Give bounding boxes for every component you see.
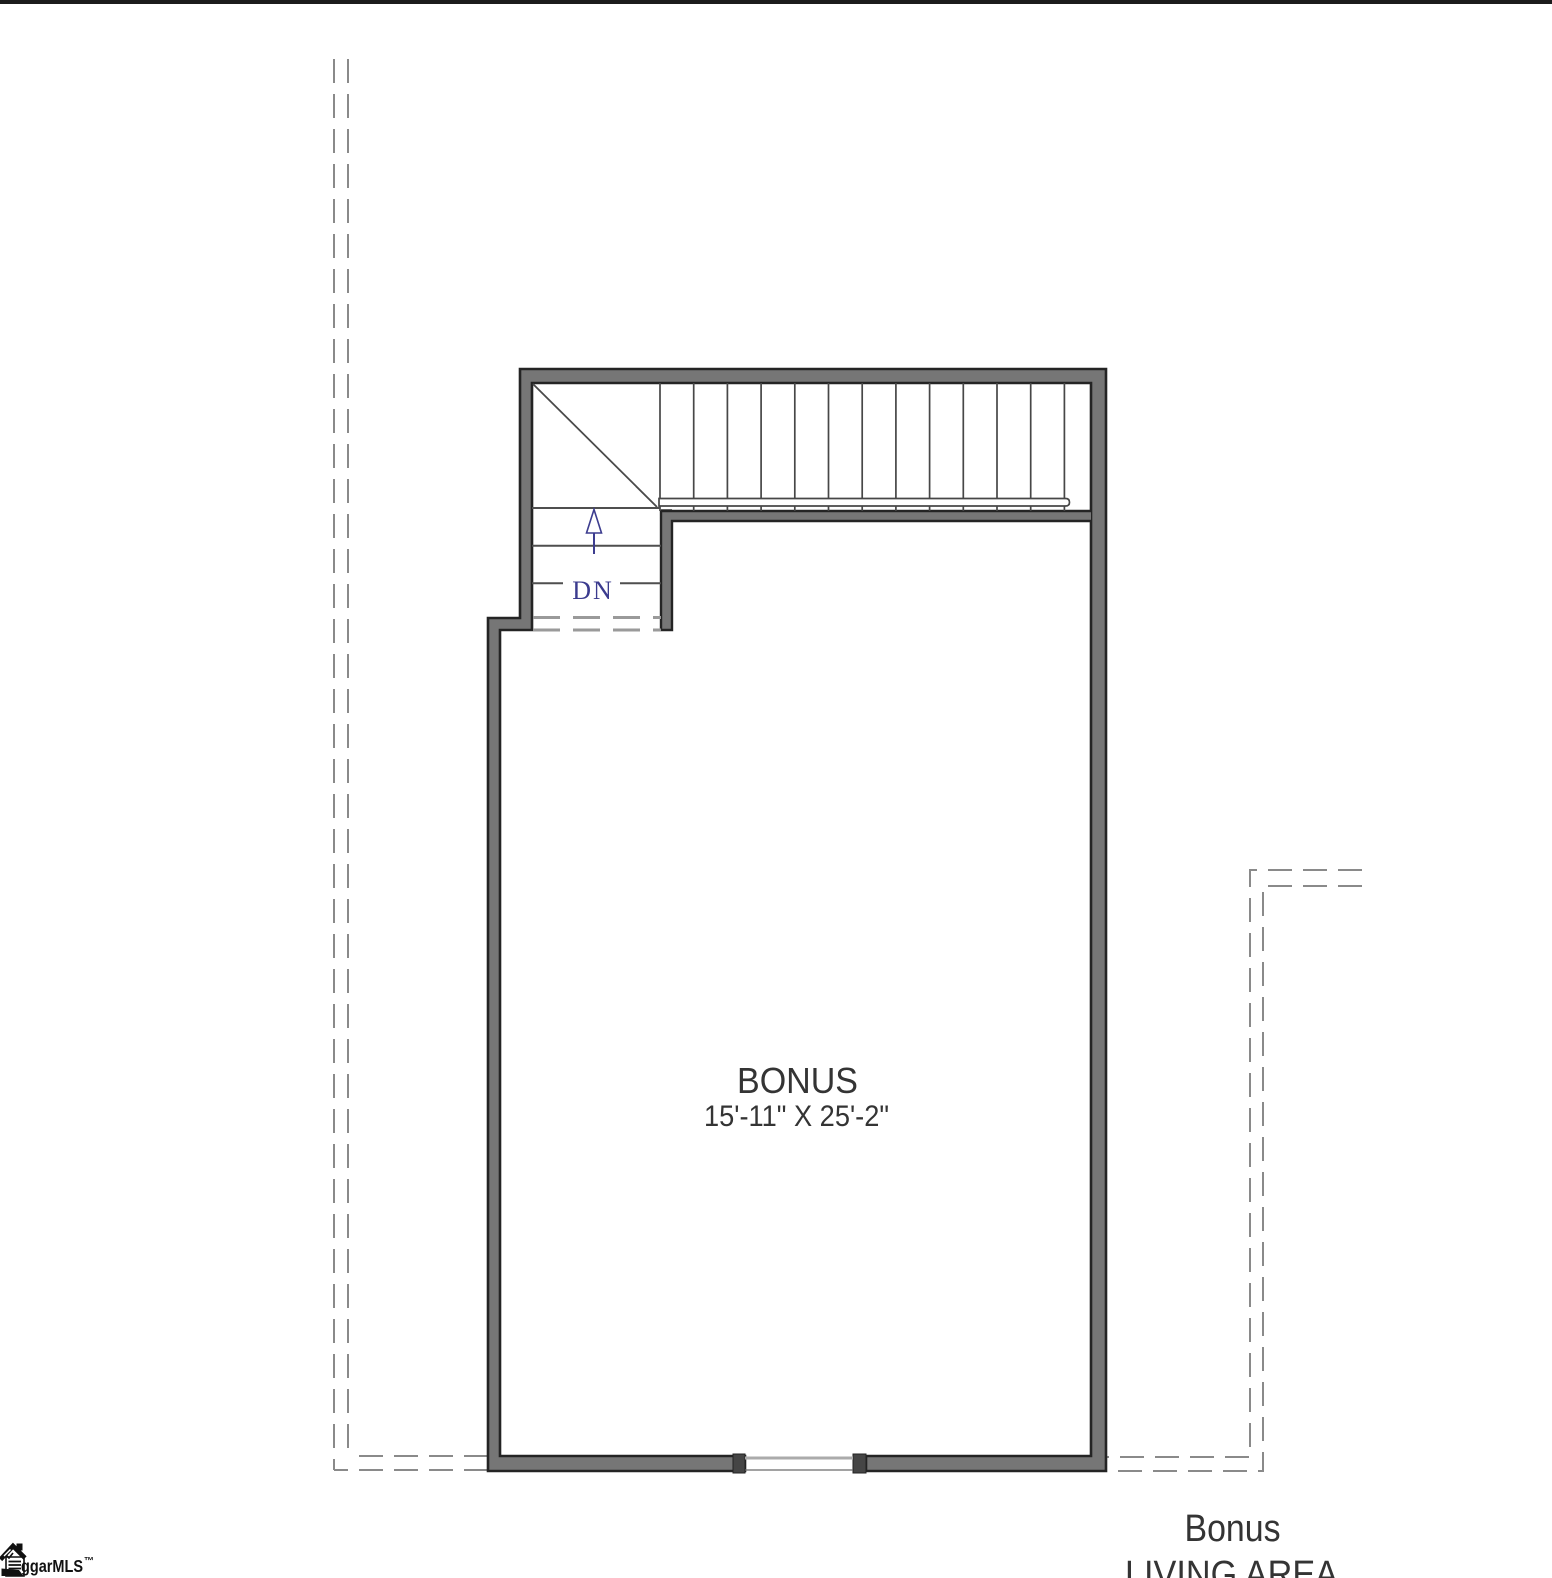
svg-text:™: ™ xyxy=(84,1556,94,1567)
svg-text:DN: DN xyxy=(572,576,614,605)
svg-text:ggarMLS: ggarMLS xyxy=(21,1556,83,1576)
svg-text:15'-11" X 25'-2": 15'-11" X 25'-2" xyxy=(704,1100,889,1133)
svg-text:BONUS: BONUS xyxy=(737,1060,858,1101)
svg-text:Bonus: Bonus xyxy=(1185,1508,1281,1550)
svg-text:LIVING AREA: LIVING AREA xyxy=(1125,1554,1339,1578)
